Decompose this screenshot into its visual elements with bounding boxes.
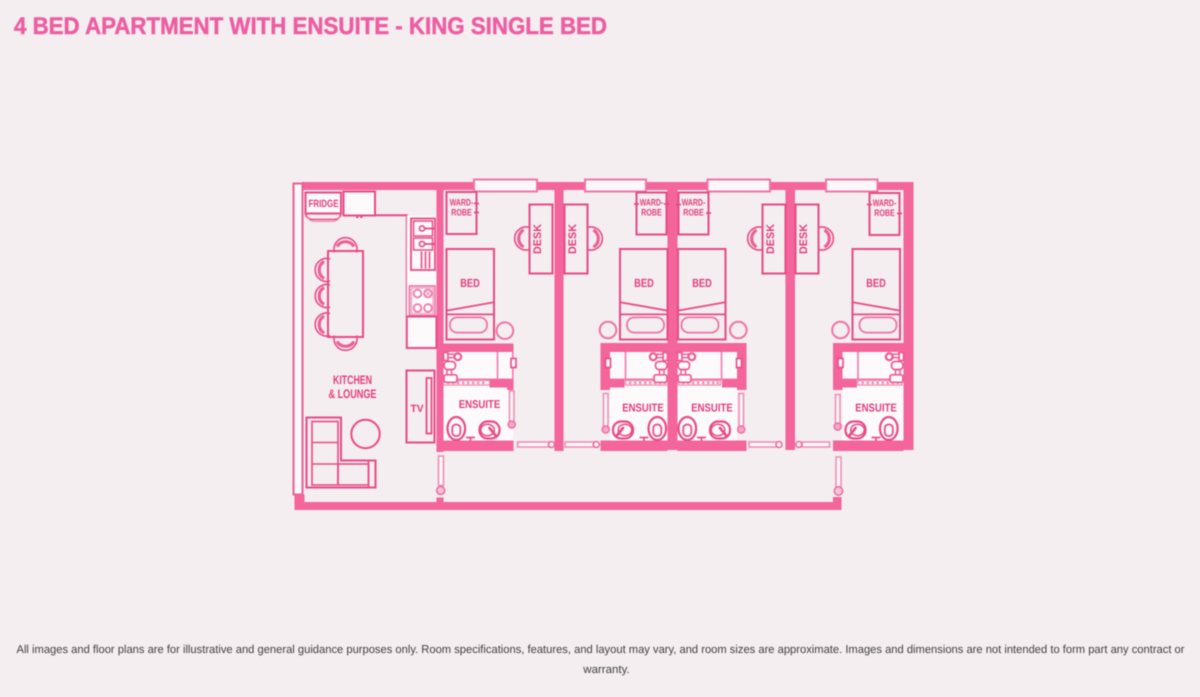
svg-text:BED: BED <box>460 276 480 290</box>
svg-text:& LOUNGE: & LOUNGE <box>329 387 377 401</box>
svg-text:TV: TV <box>411 403 424 415</box>
svg-text:BED: BED <box>692 276 712 290</box>
svg-text:BED: BED <box>866 276 886 290</box>
svg-text:DESK: DESK <box>567 224 579 254</box>
svg-text:ROBE: ROBE <box>683 207 704 218</box>
svg-text:FRIDGE: FRIDGE <box>309 198 339 210</box>
svg-text:DESK: DESK <box>765 224 777 254</box>
svg-text:ENSUITE: ENSUITE <box>855 403 897 415</box>
svg-text:DESK: DESK <box>532 224 544 254</box>
svg-text:ENSUITE: ENSUITE <box>691 403 733 415</box>
svg-text:4 BED APARTMENT WITH ENSUITE -: 4 BED APARTMENT WITH ENSUITE - KING SING… <box>14 13 607 40</box>
svg-text:ENSUITE: ENSUITE <box>622 403 664 415</box>
svg-text:All images and floor plans are: All images and floor plans are for illus… <box>17 644 1185 656</box>
svg-text:ENSUITE: ENSUITE <box>459 399 501 411</box>
svg-text:KITCHEN: KITCHEN <box>333 373 372 387</box>
svg-text:BED: BED <box>634 276 654 290</box>
svg-text:warranty.: warranty. <box>582 664 629 676</box>
svg-text:ROBE: ROBE <box>641 207 662 218</box>
svg-text:DESK: DESK <box>798 224 810 254</box>
svg-text:ROBE: ROBE <box>451 207 472 218</box>
svg-text:ROBE: ROBE <box>874 207 895 218</box>
